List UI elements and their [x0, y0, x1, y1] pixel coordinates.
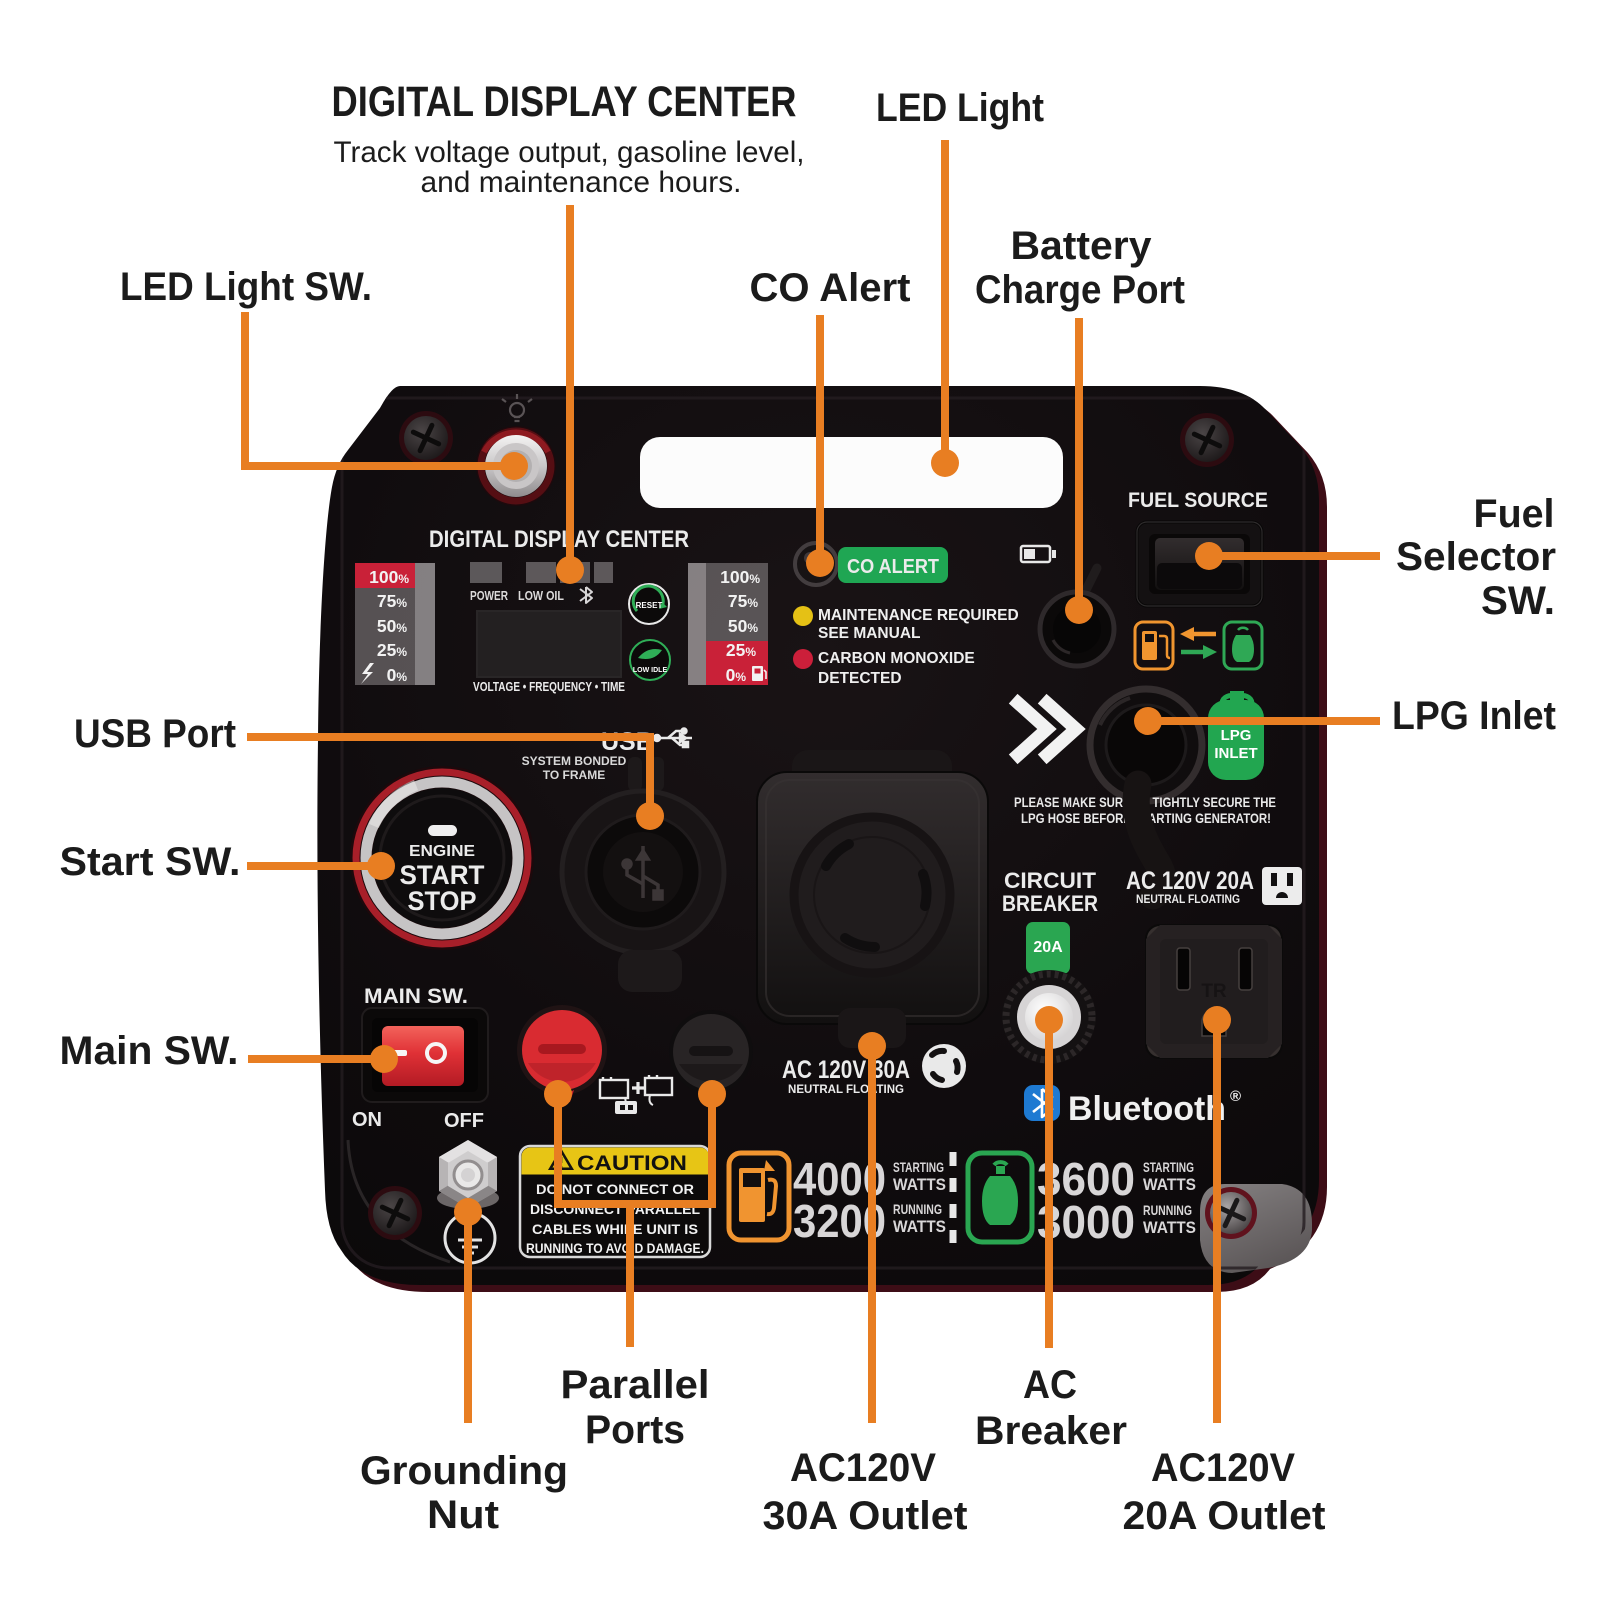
- svg-text:FUEL SOURCE: FUEL SOURCE: [1128, 489, 1268, 512]
- svg-text:TO FRAME: TO FRAME: [543, 768, 605, 782]
- svg-text:WATTS: WATTS: [893, 1175, 946, 1194]
- svg-text:DIGITAL DISPLAY CENTER: DIGITAL DISPLAY CENTER: [429, 526, 689, 553]
- svg-text:RESET: RESET: [636, 601, 663, 610]
- svg-text:Ports: Ports: [585, 1408, 685, 1452]
- svg-text:CARBON MONOXIDE: CARBON MONOXIDE: [818, 650, 975, 667]
- svg-text:Parallel: Parallel: [561, 1363, 710, 1407]
- svg-text:Battery: Battery: [1011, 224, 1153, 268]
- svg-text:SYSTEM BONDED: SYSTEM BONDED: [522, 754, 627, 768]
- svg-text:ENGINE: ENGINE: [409, 843, 475, 860]
- svg-text:DIGITAL DISPLAY CENTER: DIGITAL DISPLAY CENTER: [332, 78, 797, 126]
- svg-text:USB: USB: [601, 728, 654, 756]
- svg-text:LED Light: LED Light: [876, 86, 1044, 130]
- svg-text:Grounding: Grounding: [360, 1449, 568, 1493]
- svg-text:Start SW.: Start SW.: [60, 840, 241, 884]
- svg-text:RUNNING TO AVOID DAMAGE.: RUNNING TO AVOID DAMAGE.: [526, 1241, 704, 1256]
- svg-text:LED Light SW.: LED Light SW.: [120, 265, 372, 309]
- svg-text:Breaker: Breaker: [975, 1409, 1127, 1453]
- svg-text:Track voltage output, gasoline: Track voltage output, gasoline level,: [334, 136, 805, 169]
- svg-text:AC120V: AC120V: [1151, 1446, 1295, 1490]
- svg-text:LOW IDLE: LOW IDLE: [633, 667, 668, 674]
- svg-text:MAINTENANCE REQUIRED: MAINTENANCE REQUIRED: [818, 607, 1019, 624]
- svg-text:NEUTRAL FLOATING: NEUTRAL FLOATING: [788, 1084, 904, 1096]
- svg-text:®: ®: [1230, 1088, 1241, 1105]
- svg-text:MAIN SW.: MAIN SW.: [364, 985, 468, 1008]
- svg-text:CO Alert: CO Alert: [750, 266, 911, 310]
- svg-text:AC120V: AC120V: [790, 1446, 936, 1490]
- svg-text:USB Port: USB Port: [74, 712, 236, 756]
- svg-text:OFF: OFF: [444, 1110, 484, 1132]
- svg-text:TR: TR: [1201, 981, 1227, 1002]
- svg-text:ON: ON: [352, 1109, 382, 1131]
- svg-text:POWER: POWER: [470, 588, 508, 603]
- svg-text:and maintenance hours.: and maintenance hours.: [421, 166, 742, 199]
- svg-text:Main SW.: Main SW.: [60, 1029, 239, 1073]
- svg-text:SW.: SW.: [1481, 579, 1555, 623]
- svg-text:Bluetooth: Bluetooth: [1068, 1090, 1226, 1128]
- svg-text:LPG Inlet: LPG Inlet: [1392, 694, 1556, 738]
- svg-text:STARTING: STARTING: [1143, 1159, 1194, 1175]
- svg-text:WATTS: WATTS: [1143, 1175, 1196, 1194]
- svg-text:AC 120V 20A: AC 120V 20A: [1126, 867, 1254, 895]
- svg-text:CAUTION: CAUTION: [577, 1152, 687, 1175]
- svg-text:BREAKER: BREAKER: [1002, 891, 1098, 916]
- svg-text:Charge Port: Charge Port: [975, 268, 1185, 312]
- svg-text:SEE MANUAL: SEE MANUAL: [818, 625, 920, 642]
- svg-text:30A Outlet: 30A Outlet: [763, 1494, 968, 1538]
- svg-text:20A Outlet: 20A Outlet: [1123, 1494, 1326, 1538]
- svg-text:AC: AC: [1023, 1363, 1077, 1407]
- svg-text:Nut: Nut: [427, 1493, 499, 1537]
- svg-text:DETECTED: DETECTED: [818, 670, 902, 687]
- svg-text:CO ALERT: CO ALERT: [847, 556, 939, 578]
- svg-text:VOLTAGE • FREQUENCY • TIME: VOLTAGE • FREQUENCY • TIME: [473, 680, 625, 694]
- svg-text:LOW OIL: LOW OIL: [518, 588, 564, 603]
- svg-text:WATTS: WATTS: [1143, 1218, 1196, 1237]
- svg-text:AC 120V 30A: AC 120V 30A: [782, 1056, 910, 1084]
- svg-text:INLET: INLET: [1214, 745, 1257, 762]
- svg-text:20A: 20A: [1033, 939, 1063, 956]
- svg-text:RUNNING: RUNNING: [893, 1201, 942, 1217]
- svg-text:CABLES WHILE UNIT IS: CABLES WHILE UNIT IS: [532, 1222, 698, 1237]
- svg-text:LPG: LPG: [1221, 727, 1252, 744]
- svg-text:RUNNING: RUNNING: [1143, 1202, 1192, 1218]
- svg-text:WATTS: WATTS: [893, 1217, 946, 1236]
- svg-text:STOP: STOP: [408, 886, 477, 916]
- svg-text:STARTING: STARTING: [893, 1159, 944, 1175]
- svg-text:Selector: Selector: [1396, 535, 1556, 579]
- svg-text:NEUTRAL FLOATING: NEUTRAL FLOATING: [1136, 894, 1240, 906]
- svg-text:CIRCUIT: CIRCUIT: [1004, 868, 1097, 893]
- svg-text:Fuel: Fuel: [1474, 492, 1555, 536]
